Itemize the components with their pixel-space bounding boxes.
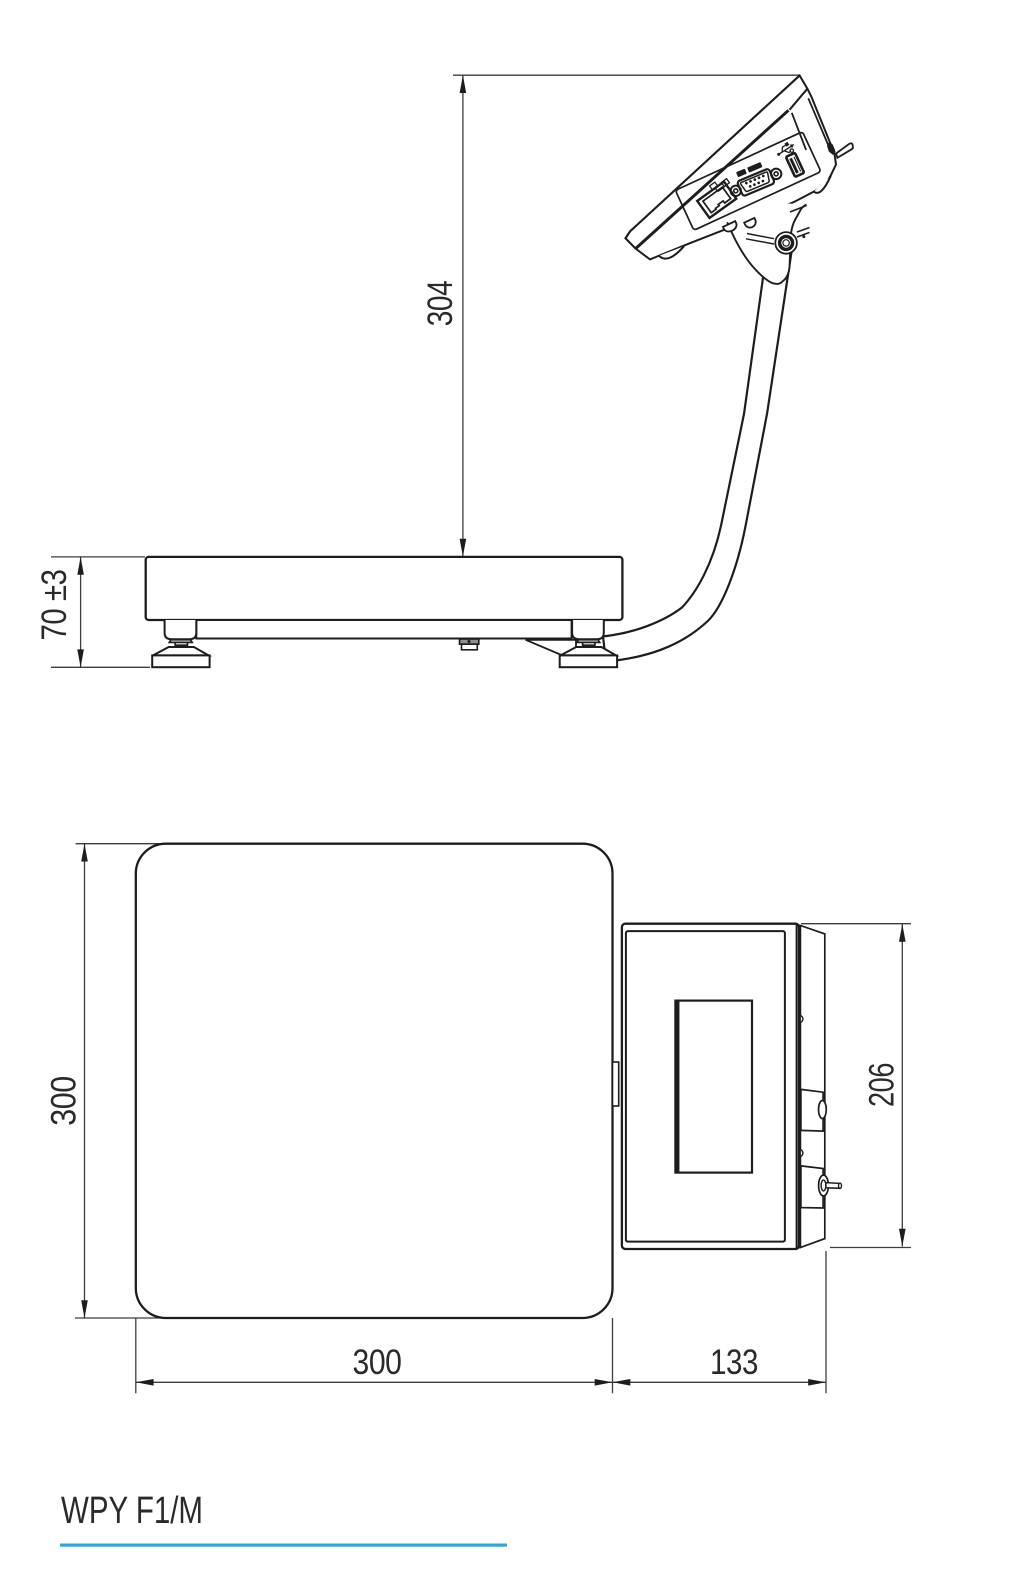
svg-text:133: 133 [710, 1343, 758, 1382]
svg-text:300: 300 [45, 1076, 84, 1126]
svg-text:WPY F1/M: WPY F1/M [61, 1490, 203, 1532]
svg-text:206: 206 [863, 1063, 902, 1107]
svg-text:304: 304 [421, 281, 460, 327]
svg-text:300: 300 [353, 1343, 402, 1382]
svg-text:70 ±3: 70 ±3 [35, 570, 74, 641]
